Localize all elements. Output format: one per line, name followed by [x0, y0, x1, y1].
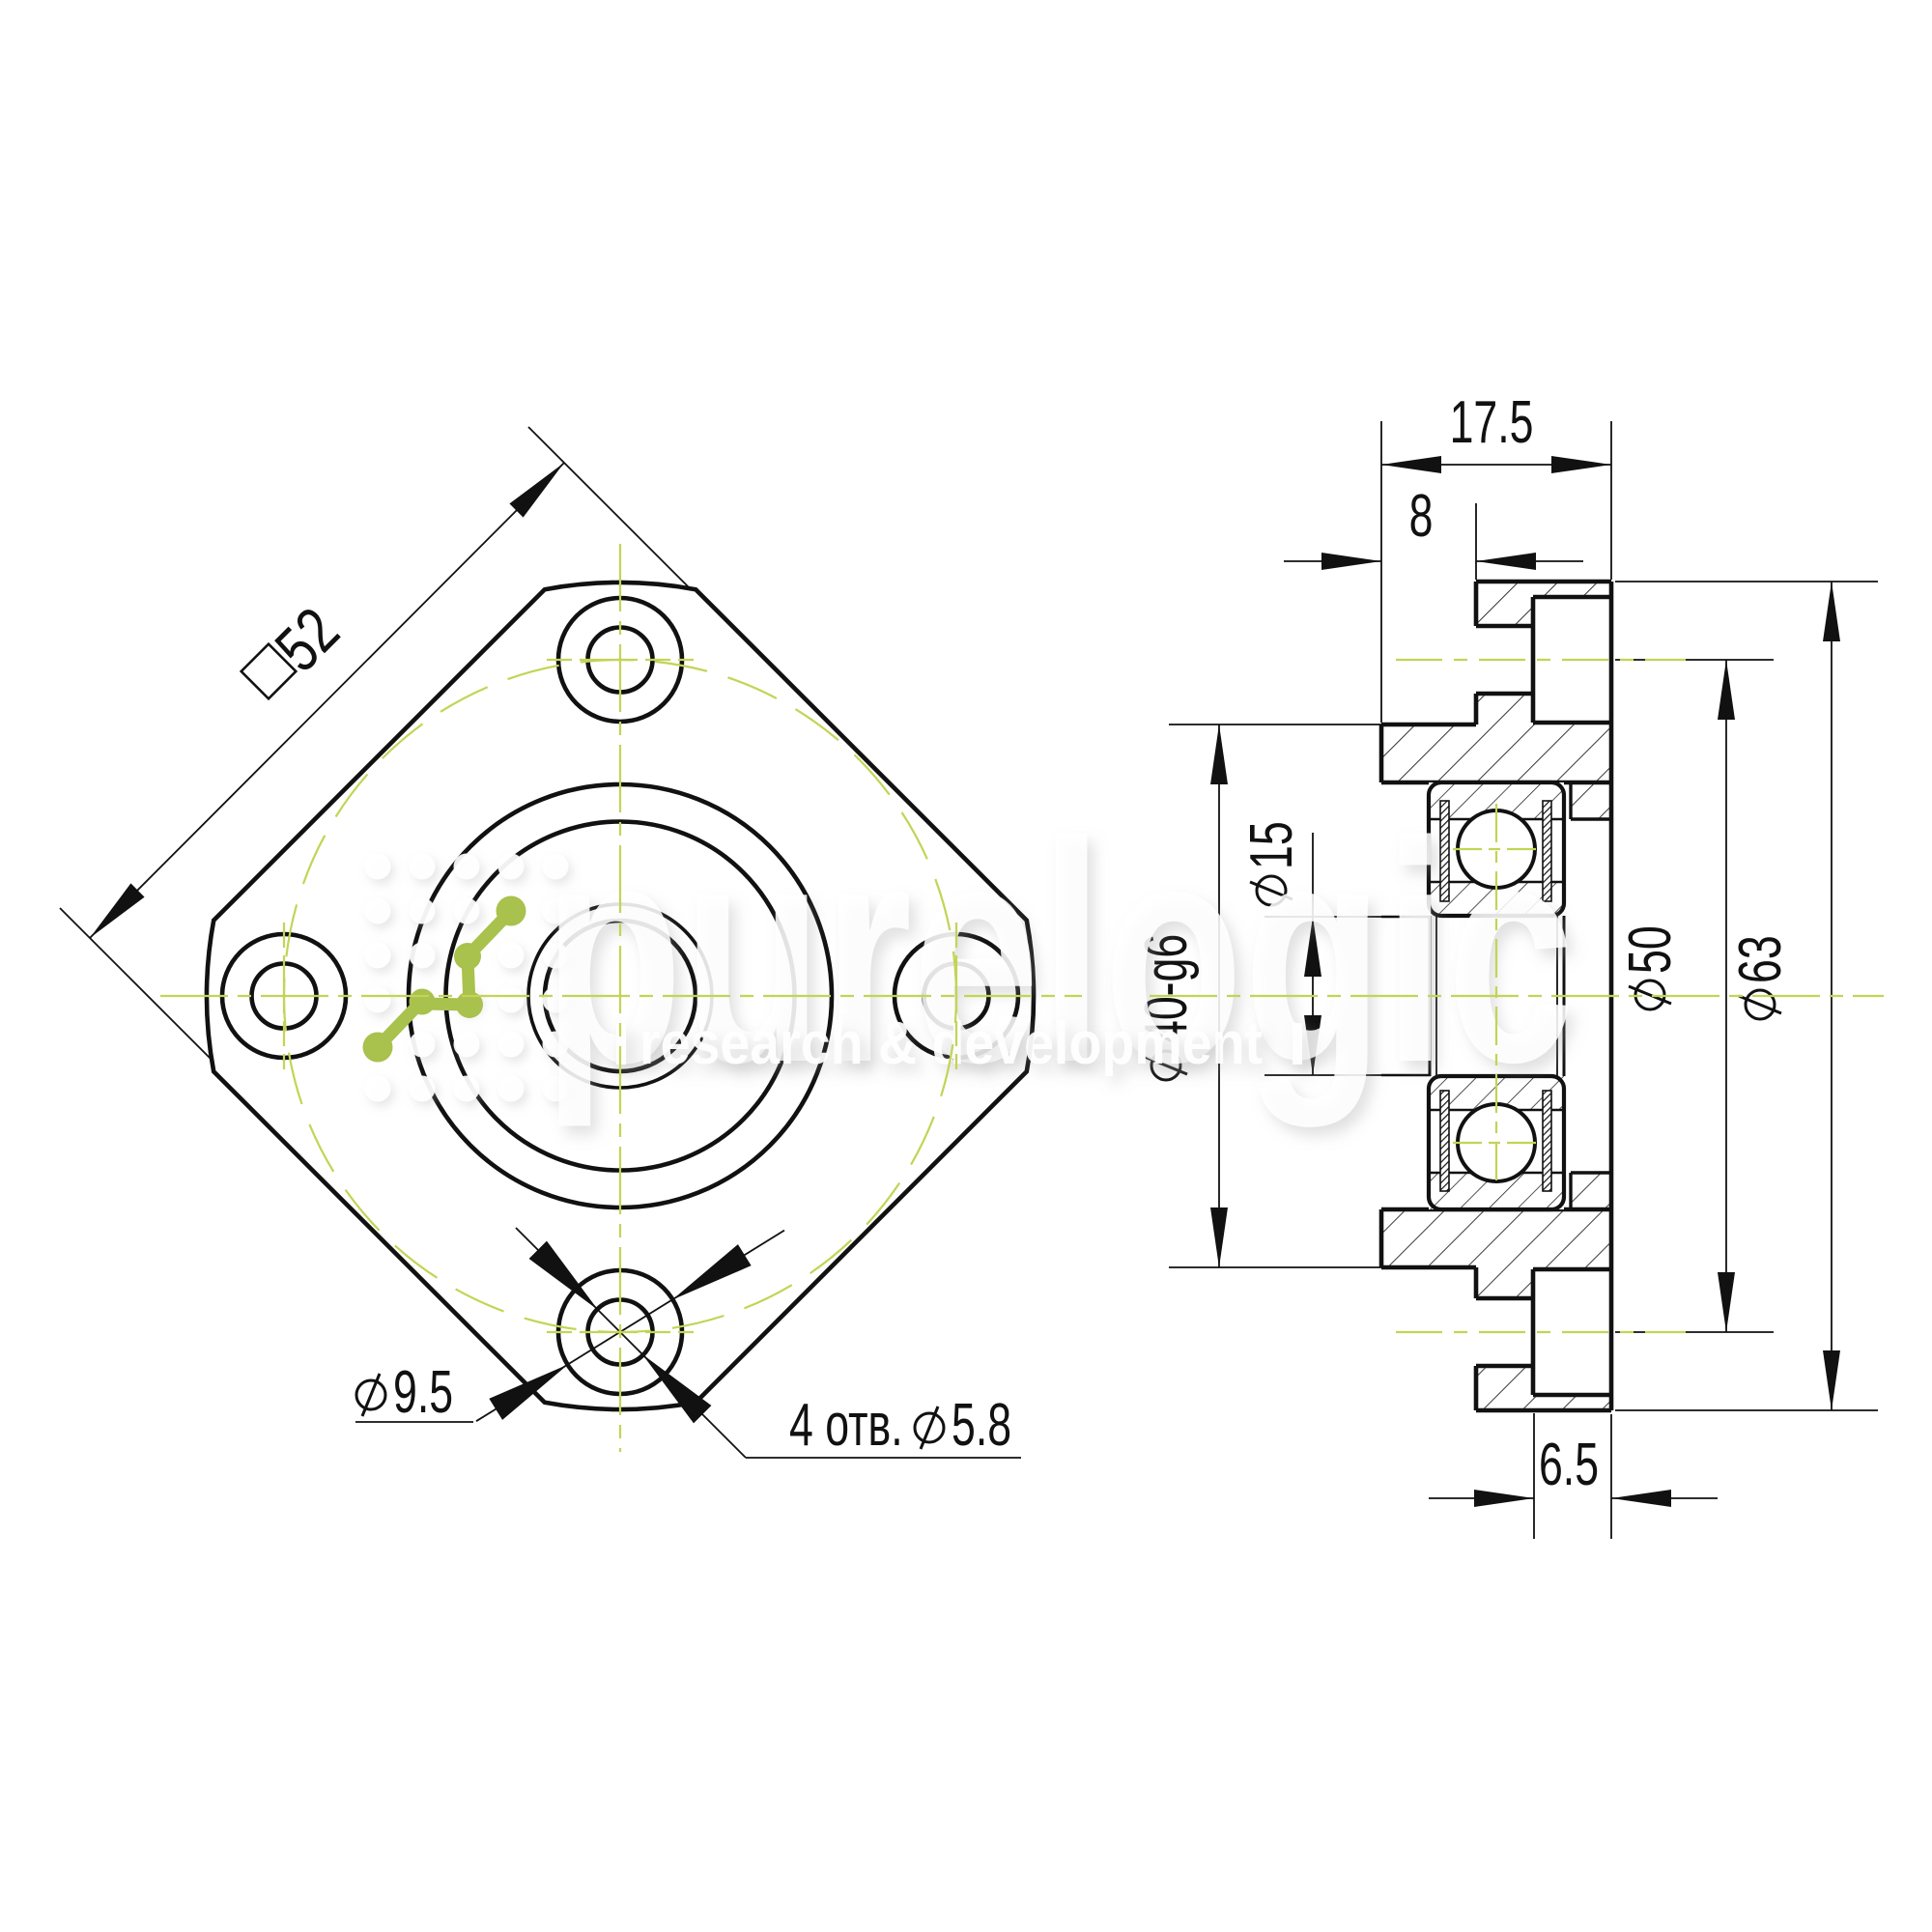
svg-text:50: 50 [1617, 925, 1684, 974]
svg-text:17.5: 17.5 [1450, 389, 1534, 456]
svg-text:9.5: 9.5 [393, 1359, 453, 1426]
svg-text:4 отв.: 4 отв. [789, 1392, 903, 1459]
svg-text:6.5: 6.5 [1539, 1432, 1599, 1498]
svg-text:research & development: research & development [639, 1010, 1263, 1077]
svg-text:5.8: 5.8 [952, 1392, 1011, 1459]
svg-text:63: 63 [1727, 935, 1794, 983]
svg-text:8: 8 [1409, 483, 1434, 550]
